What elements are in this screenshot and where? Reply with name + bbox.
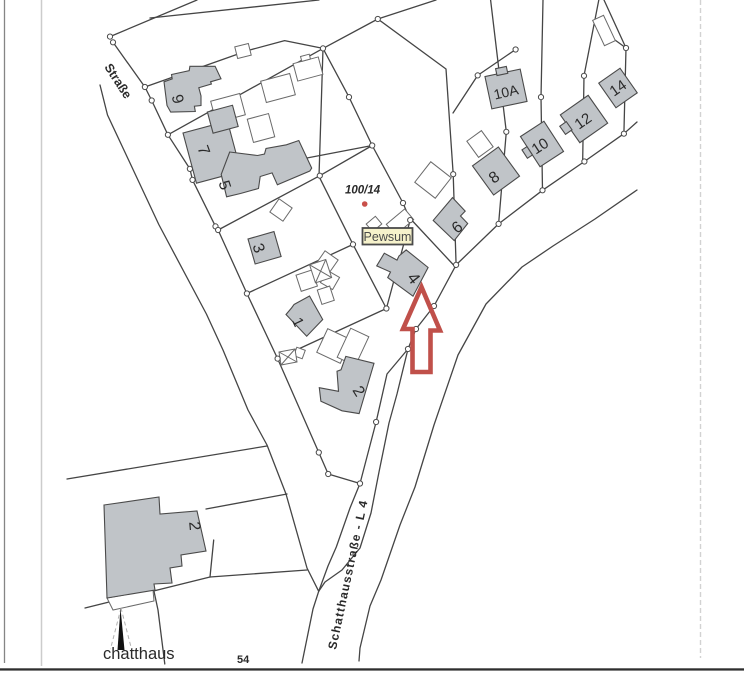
svg-text:chatthaus: chatthaus xyxy=(103,645,175,663)
svg-text:2: 2 xyxy=(185,521,203,531)
svg-text:54: 54 xyxy=(237,654,250,666)
svg-text:Pewsum: Pewsum xyxy=(364,230,412,244)
svg-text:100/14: 100/14 xyxy=(345,185,381,197)
